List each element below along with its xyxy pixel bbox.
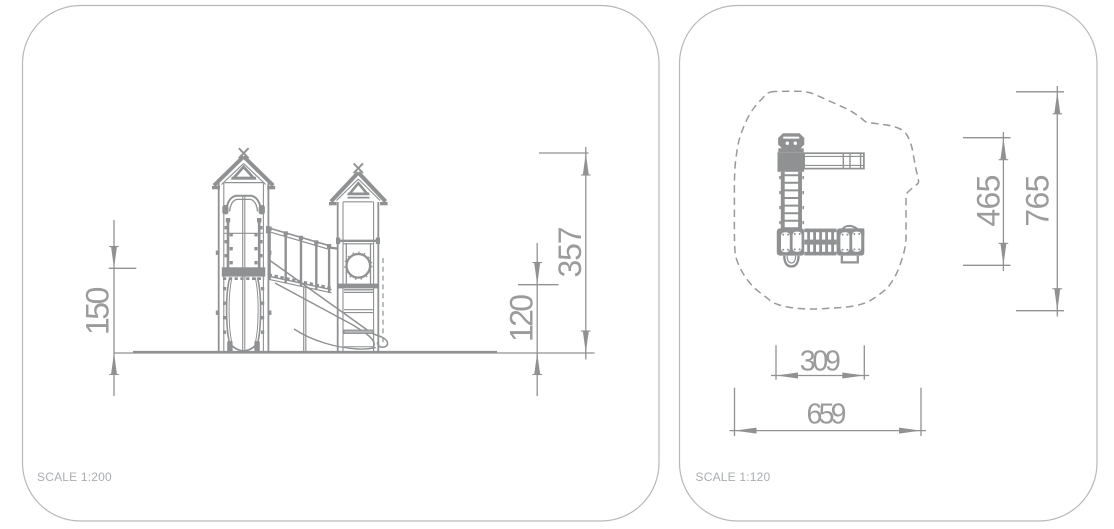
svg-text:150: 150 xyxy=(79,287,115,336)
svg-text:659: 659 xyxy=(807,399,847,431)
svg-text:765: 765 xyxy=(1019,175,1055,227)
svg-text:357: 357 xyxy=(552,227,588,278)
svg-text:309: 309 xyxy=(800,345,841,377)
svg-text:SCALE 1:200: SCALE 1:200 xyxy=(37,470,112,484)
svg-text:SCALE 1:120: SCALE 1:120 xyxy=(696,470,771,484)
svg-text:465: 465 xyxy=(971,175,1007,227)
svg-text:120: 120 xyxy=(503,294,539,342)
